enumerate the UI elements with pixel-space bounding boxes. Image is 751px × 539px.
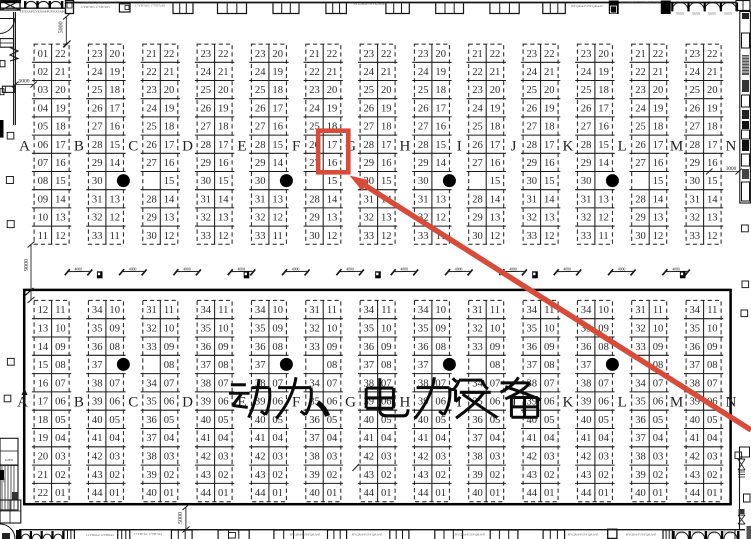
svg-text:18: 18 — [544, 122, 555, 133]
svg-text:01: 01 — [38, 49, 49, 60]
svg-text:29: 29 — [635, 213, 646, 224]
svg-text:32: 32 — [635, 323, 646, 334]
svg-text:17: 17 — [381, 140, 392, 151]
svg-text:41: 41 — [690, 433, 701, 444]
svg-text:20: 20 — [381, 85, 392, 96]
svg-text:31: 31 — [92, 194, 103, 205]
svg-text:09: 09 — [218, 342, 229, 353]
svg-text:H: H — [399, 138, 410, 154]
svg-text:15: 15 — [38, 360, 49, 371]
svg-text:13: 13 — [55, 213, 66, 224]
svg-text:10: 10 — [218, 323, 229, 334]
svg-text:17: 17 — [707, 140, 718, 151]
svg-text:39: 39 — [581, 397, 592, 408]
svg-text:38: 38 — [309, 452, 320, 463]
svg-text:13: 13 — [544, 213, 555, 224]
svg-text:25: 25 — [527, 85, 538, 96]
svg-text:25: 25 — [92, 85, 103, 96]
svg-text:42: 42 — [92, 452, 103, 463]
svg-text:20: 20 — [109, 49, 120, 60]
svg-text:17: 17 — [218, 140, 229, 151]
svg-text:4000: 4000 — [672, 267, 680, 271]
svg-text:28: 28 — [364, 140, 375, 151]
svg-text:16: 16 — [164, 158, 175, 169]
svg-text:37: 37 — [418, 360, 429, 371]
svg-text:08: 08 — [381, 360, 392, 371]
svg-text:14: 14 — [218, 194, 229, 205]
svg-text:25: 25 — [418, 85, 429, 96]
svg-text:37: 37 — [201, 360, 212, 371]
svg-text:04: 04 — [381, 433, 392, 444]
svg-text:44: 44 — [581, 488, 592, 499]
svg-text:19: 19 — [490, 103, 501, 114]
svg-text:31: 31 — [146, 305, 157, 316]
svg-text:08: 08 — [272, 342, 283, 353]
svg-text:D: D — [182, 394, 193, 410]
svg-text:30: 30 — [581, 176, 592, 187]
svg-text:19: 19 — [109, 67, 120, 78]
svg-text:08: 08 — [490, 360, 501, 371]
svg-text:09: 09 — [327, 342, 338, 353]
svg-text:26: 26 — [690, 103, 701, 114]
svg-text:29: 29 — [690, 158, 701, 169]
svg-text:19: 19 — [653, 103, 664, 114]
svg-text:04: 04 — [55, 433, 66, 444]
svg-text:01: 01 — [272, 488, 283, 499]
svg-text:34: 34 — [635, 378, 646, 389]
svg-text:9000: 9000 — [24, 259, 30, 271]
svg-text:14: 14 — [272, 158, 283, 169]
svg-text:38: 38 — [472, 452, 483, 463]
svg-text:27: 27 — [92, 122, 103, 133]
svg-text:23: 23 — [309, 85, 320, 96]
svg-text:20: 20 — [38, 452, 49, 463]
svg-text:31: 31 — [635, 305, 646, 316]
svg-text:36: 36 — [364, 342, 375, 353]
svg-text:11: 11 — [653, 305, 663, 316]
svg-text:37: 37 — [309, 433, 320, 444]
svg-text:L: L — [618, 394, 627, 410]
svg-text:31: 31 — [255, 194, 266, 205]
svg-text:41: 41 — [255, 433, 266, 444]
svg-text:13: 13 — [109, 194, 120, 205]
svg-text:40: 40 — [581, 415, 592, 426]
svg-text:05: 05 — [327, 415, 338, 426]
svg-text:01: 01 — [381, 488, 392, 499]
svg-text:12: 12 — [653, 231, 664, 242]
svg-text:32: 32 — [146, 323, 157, 334]
svg-text:17: 17 — [435, 103, 446, 114]
svg-text:30: 30 — [146, 231, 157, 242]
svg-text:G: G — [345, 394, 356, 410]
svg-text:XXXX: XXXX — [676, 13, 684, 16]
svg-text:14: 14 — [435, 158, 446, 169]
svg-text:37: 37 — [635, 433, 646, 444]
svg-text:19: 19 — [164, 103, 175, 114]
svg-text:31: 31 — [690, 194, 701, 205]
svg-text:20: 20 — [544, 85, 555, 96]
svg-text:17: 17 — [327, 140, 338, 151]
svg-text:36: 36 — [201, 342, 212, 353]
svg-text:20: 20 — [490, 85, 501, 96]
svg-text:31: 31 — [201, 194, 212, 205]
svg-text:29: 29 — [201, 158, 212, 169]
svg-text:38: 38 — [581, 378, 592, 389]
svg-text:N: N — [725, 394, 736, 410]
svg-text:24: 24 — [146, 103, 157, 114]
svg-text:13: 13 — [707, 213, 718, 224]
svg-text:02: 02 — [327, 470, 338, 481]
svg-text:21: 21 — [544, 67, 555, 78]
svg-text:22: 22 — [38, 488, 49, 499]
svg-text:23: 23 — [527, 49, 538, 60]
svg-text:02: 02 — [435, 470, 446, 481]
svg-text:03: 03 — [435, 452, 446, 463]
svg-text:4000: 4000 — [455, 267, 463, 271]
svg-text:19: 19 — [707, 103, 718, 114]
svg-text:J: J — [511, 138, 517, 154]
svg-text:02: 02 — [272, 470, 283, 481]
svg-text:15: 15 — [272, 140, 283, 151]
svg-text:25: 25 — [635, 122, 646, 133]
svg-text:44: 44 — [201, 488, 212, 499]
svg-text:39: 39 — [635, 470, 646, 481]
svg-text:41: 41 — [364, 433, 375, 444]
svg-text:18: 18 — [55, 122, 66, 133]
svg-text:26: 26 — [581, 103, 592, 114]
svg-text:28: 28 — [255, 140, 266, 151]
svg-text:YEXSAPUYEXSAPUYEXSAPU: YEXSAPUYEXSAPUYEXSAPU — [20, 10, 67, 14]
svg-text:25: 25 — [472, 122, 483, 133]
svg-text:40: 40 — [690, 415, 701, 426]
svg-text:33: 33 — [364, 231, 375, 242]
svg-text:10: 10 — [327, 323, 338, 334]
svg-text:25: 25 — [201, 85, 212, 96]
svg-text:XXXX: XXXX — [724, 531, 732, 534]
svg-text:20: 20 — [218, 85, 229, 96]
svg-text:42: 42 — [364, 452, 375, 463]
svg-text:08: 08 — [598, 342, 609, 353]
svg-text:L: L — [618, 138, 627, 154]
svg-text:K: K — [562, 138, 573, 154]
svg-text:36: 36 — [146, 415, 157, 426]
svg-text:22: 22 — [327, 49, 338, 60]
svg-text:04: 04 — [490, 433, 501, 444]
svg-text:21: 21 — [635, 49, 646, 60]
svg-text:16: 16 — [381, 158, 392, 169]
svg-text:02: 02 — [109, 470, 120, 481]
svg-text:03: 03 — [38, 85, 49, 96]
svg-text:33: 33 — [92, 231, 103, 242]
svg-text:35: 35 — [635, 397, 646, 408]
svg-text:31: 31 — [418, 194, 429, 205]
svg-text:22: 22 — [653, 49, 664, 60]
svg-text:21: 21 — [146, 49, 157, 60]
svg-text:H: H — [399, 394, 410, 410]
svg-text:30: 30 — [255, 176, 266, 187]
svg-text:01: 01 — [490, 488, 501, 499]
svg-text:24: 24 — [92, 67, 103, 78]
svg-text:BYQRA45BYQRA45BYQRA45: BYQRA45BYQRA45BYQRA45 — [621, 0, 664, 4]
svg-text:10: 10 — [164, 323, 175, 334]
svg-text:29: 29 — [418, 158, 429, 169]
svg-text:4000: 4000 — [75, 267, 83, 271]
svg-text:31: 31 — [527, 194, 538, 205]
svg-text:01: 01 — [327, 488, 338, 499]
svg-text:05: 05 — [55, 415, 66, 426]
svg-text:XXXX: XXXX — [692, 13, 700, 16]
svg-text:16: 16 — [598, 122, 609, 133]
svg-text:15: 15 — [109, 140, 120, 151]
svg-text:15: 15 — [707, 176, 718, 187]
svg-text:24: 24 — [201, 67, 212, 78]
svg-text:23: 23 — [201, 49, 212, 60]
svg-text:19: 19 — [381, 103, 392, 114]
svg-text:12: 12 — [218, 231, 229, 242]
svg-text:11: 11 — [327, 305, 337, 316]
svg-text:19: 19 — [38, 433, 49, 444]
svg-text:14: 14 — [38, 342, 49, 353]
svg-text:A: A — [19, 138, 30, 154]
svg-text:34: 34 — [255, 305, 266, 316]
svg-text:14: 14 — [598, 158, 609, 169]
svg-text:22: 22 — [381, 49, 392, 60]
svg-text:11: 11 — [381, 305, 391, 316]
svg-text:4000: 4000 — [563, 267, 571, 271]
svg-text:17YB7z63 17YB7z63: 17YB7z63 17YB7z63 — [135, 3, 166, 7]
svg-text:13: 13 — [272, 194, 283, 205]
svg-text:35: 35 — [201, 323, 212, 334]
svg-text:30: 30 — [690, 176, 701, 187]
svg-text:15: 15 — [544, 176, 555, 187]
svg-text:44: 44 — [690, 488, 701, 499]
svg-text:36: 36 — [527, 342, 538, 353]
svg-text:06: 06 — [327, 397, 338, 408]
svg-text:BYQRA45 BYQRA45: BYQRA45 BYQRA45 — [626, 533, 657, 537]
svg-text:43: 43 — [581, 470, 592, 481]
svg-text:06: 06 — [218, 397, 229, 408]
svg-text:03: 03 — [272, 452, 283, 463]
svg-text:40: 40 — [364, 415, 375, 426]
svg-text:15: 15 — [218, 176, 229, 187]
svg-text:38: 38 — [92, 378, 103, 389]
svg-text:40: 40 — [92, 415, 103, 426]
svg-text:17: 17 — [38, 397, 49, 408]
svg-text:BYQRA45 BYQRA45: BYQRA45 BYQRA45 — [352, 533, 383, 537]
svg-text:08: 08 — [707, 360, 718, 371]
svg-text:24: 24 — [472, 103, 483, 114]
svg-text:28: 28 — [527, 140, 538, 151]
svg-text:21: 21 — [472, 49, 483, 60]
svg-text:27: 27 — [201, 122, 212, 133]
svg-text:30: 30 — [201, 176, 212, 187]
svg-text:23: 23 — [472, 85, 483, 96]
svg-text:26: 26 — [418, 103, 429, 114]
svg-text:20: 20 — [164, 85, 175, 96]
svg-text:20: 20 — [435, 49, 446, 60]
svg-text:02: 02 — [598, 470, 609, 481]
svg-text:12: 12 — [598, 213, 609, 224]
svg-text:31: 31 — [364, 194, 375, 205]
svg-text:18: 18 — [109, 85, 120, 96]
svg-text:31: 31 — [472, 305, 483, 316]
svg-text:04: 04 — [164, 433, 175, 444]
svg-text:31: 31 — [309, 305, 320, 316]
svg-text:06: 06 — [435, 397, 446, 408]
svg-text:17: 17 — [544, 140, 555, 151]
svg-text:05: 05 — [38, 122, 49, 133]
svg-text:20: 20 — [653, 85, 664, 96]
svg-text:19: 19 — [544, 103, 555, 114]
svg-text:12YB9A4 12YB9A4: 12YB9A4 12YB9A4 — [86, 533, 114, 537]
svg-text:05: 05 — [653, 415, 664, 426]
svg-text:14: 14 — [55, 194, 66, 205]
svg-text:03: 03 — [490, 452, 501, 463]
svg-text:10: 10 — [38, 213, 49, 224]
svg-text:C: C — [128, 394, 138, 410]
svg-text:01: 01 — [109, 488, 120, 499]
svg-text:30: 30 — [635, 231, 646, 242]
svg-text:06: 06 — [55, 397, 66, 408]
svg-text:40: 40 — [255, 415, 266, 426]
svg-text:I: I — [457, 138, 462, 154]
svg-text:37: 37 — [92, 360, 103, 371]
svg-text:07: 07 — [38, 158, 49, 169]
svg-text:K: K — [562, 394, 573, 410]
svg-text:22: 22 — [490, 49, 501, 60]
svg-text:07: 07 — [653, 378, 664, 389]
svg-text:32: 32 — [527, 213, 538, 224]
svg-text:33: 33 — [472, 342, 483, 353]
svg-text:04: 04 — [38, 103, 49, 114]
svg-text:23: 23 — [635, 85, 646, 96]
svg-text:04: 04 — [544, 433, 555, 444]
svg-text:13: 13 — [327, 213, 338, 224]
svg-text:34: 34 — [690, 305, 701, 316]
svg-text:08: 08 — [218, 360, 229, 371]
svg-text:28: 28 — [146, 194, 157, 205]
svg-text:XXXX: XXXX — [724, 13, 732, 16]
svg-text:28: 28 — [581, 140, 592, 151]
svg-text:M: M — [670, 138, 683, 154]
svg-text:44: 44 — [92, 488, 103, 499]
svg-text:14: 14 — [490, 194, 501, 205]
svg-text:42: 42 — [201, 452, 212, 463]
svg-text:XXXX: XXXX — [692, 531, 700, 534]
svg-text:32: 32 — [201, 213, 212, 224]
svg-text:07: 07 — [164, 378, 175, 389]
svg-text:12: 12 — [327, 231, 338, 242]
svg-text:29: 29 — [309, 213, 320, 224]
svg-text:24: 24 — [309, 103, 320, 114]
svg-text:29: 29 — [255, 158, 266, 169]
svg-text:21: 21 — [38, 470, 49, 481]
svg-text:19: 19 — [435, 67, 446, 78]
svg-text:25: 25 — [364, 85, 375, 96]
svg-text:09: 09 — [653, 342, 664, 353]
svg-text:17: 17 — [490, 140, 501, 151]
svg-text:16: 16 — [435, 122, 446, 133]
svg-text:30: 30 — [418, 176, 429, 187]
svg-text:38: 38 — [690, 378, 701, 389]
svg-text:04: 04 — [598, 433, 609, 444]
svg-text:24: 24 — [690, 67, 701, 78]
svg-text:04: 04 — [435, 433, 446, 444]
svg-text:21: 21 — [327, 67, 338, 78]
svg-text:02: 02 — [707, 470, 718, 481]
svg-text:39: 39 — [201, 397, 212, 408]
svg-text:41: 41 — [581, 433, 592, 444]
svg-text:09: 09 — [109, 323, 120, 334]
svg-text:07: 07 — [707, 378, 718, 389]
svg-text:4000: 4000 — [129, 267, 137, 271]
svg-text:15: 15 — [490, 176, 501, 187]
svg-text:26: 26 — [527, 103, 538, 114]
svg-text:02: 02 — [55, 470, 66, 481]
svg-text:16: 16 — [38, 378, 49, 389]
svg-text:03: 03 — [381, 452, 392, 463]
svg-text:07: 07 — [544, 378, 555, 389]
svg-text:11: 11 — [55, 305, 65, 316]
svg-text:28: 28 — [635, 194, 646, 205]
svg-text:07: 07 — [218, 378, 229, 389]
svg-text:01: 01 — [164, 488, 175, 499]
svg-text:03: 03 — [55, 452, 66, 463]
svg-text:39: 39 — [472, 470, 483, 481]
svg-text:38: 38 — [635, 452, 646, 463]
svg-text:38: 38 — [201, 378, 212, 389]
svg-text:14: 14 — [164, 194, 175, 205]
svg-text:36: 36 — [309, 415, 320, 426]
svg-text:15: 15 — [55, 176, 66, 187]
svg-text:B: B — [74, 394, 84, 410]
svg-text:16: 16 — [55, 158, 66, 169]
svg-text:13: 13 — [435, 194, 446, 205]
svg-text:04: 04 — [653, 433, 664, 444]
svg-text:43: 43 — [527, 470, 538, 481]
svg-text:42: 42 — [255, 452, 266, 463]
svg-text:D: D — [182, 138, 193, 154]
svg-text:12: 12 — [55, 231, 66, 242]
svg-text:17YB7A4 17YB7A4: 17YB7A4 17YB7A4 — [134, 532, 162, 536]
svg-text:39: 39 — [92, 397, 103, 408]
svg-text:21: 21 — [707, 67, 718, 78]
svg-text:24: 24 — [527, 67, 538, 78]
svg-text:39: 39 — [309, 470, 320, 481]
svg-text:22: 22 — [544, 49, 555, 60]
svg-text:22: 22 — [55, 49, 66, 60]
svg-text:01: 01 — [598, 488, 609, 499]
svg-text:41: 41 — [418, 433, 429, 444]
svg-text:09: 09 — [381, 342, 392, 353]
svg-text:08: 08 — [109, 342, 120, 353]
svg-text:04: 04 — [218, 433, 229, 444]
svg-text:10: 10 — [598, 305, 609, 316]
svg-text:06: 06 — [109, 397, 120, 408]
svg-text:17: 17 — [55, 140, 66, 151]
svg-text:23: 23 — [690, 49, 701, 60]
svg-text:32: 32 — [364, 213, 375, 224]
svg-text:09: 09 — [55, 342, 66, 353]
svg-text:05: 05 — [544, 415, 555, 426]
svg-text:10: 10 — [490, 323, 501, 334]
svg-text:22: 22 — [146, 67, 157, 78]
svg-text:19: 19 — [218, 103, 229, 114]
svg-text:25: 25 — [146, 122, 157, 133]
svg-text:12: 12 — [435, 213, 446, 224]
svg-text:21: 21 — [490, 67, 501, 78]
svg-text:44: 44 — [364, 488, 375, 499]
